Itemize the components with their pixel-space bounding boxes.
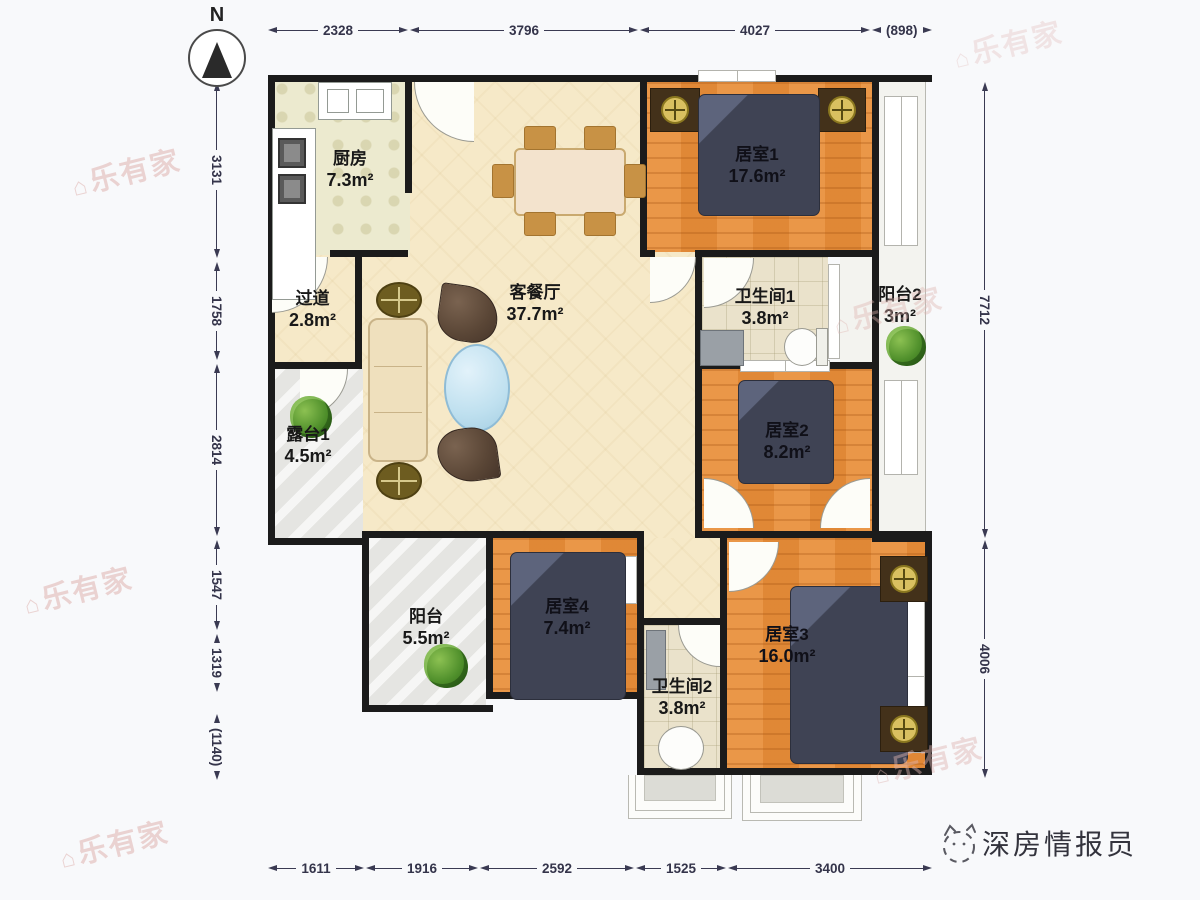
- floor-plan-page: 厨房 7.3m² 过道 2.8m² 客餐厅 37.7m² 居室1 17.6m² …: [0, 0, 1200, 900]
- sink: [700, 330, 744, 366]
- room-name: 居室1: [697, 144, 817, 165]
- wall: [486, 538, 493, 699]
- room-label-bedroom4: 居室4 7.4m²: [512, 596, 622, 640]
- north-triangle-icon: [202, 42, 232, 78]
- brand-name: 深房情报员: [982, 823, 1137, 863]
- dining-chair: [524, 126, 556, 150]
- wall: [362, 705, 493, 712]
- room-label-bedroom3: 居室3 16.0m²: [732, 624, 842, 668]
- room-label-kitchen: 厨房 7.3m²: [300, 148, 400, 192]
- plant-icon: [886, 326, 926, 366]
- plant-icon: [424, 644, 468, 688]
- dining-chair: [492, 164, 514, 198]
- wall: [268, 75, 932, 82]
- room-area: 37.7m²: [470, 303, 600, 326]
- room-label-bedroom1: 居室1 17.6m²: [697, 144, 817, 188]
- dining-chair: [524, 212, 556, 236]
- dimension-bottom: 1525: [636, 857, 726, 879]
- toilet-icon: [658, 726, 704, 770]
- dining-table: [514, 148, 626, 216]
- room-area: 2.8m²: [265, 309, 360, 332]
- room-area: 7.4m²: [512, 617, 622, 640]
- room-name: 卫生间2: [616, 676, 748, 697]
- wall: [268, 362, 362, 369]
- dimension-bottom: 1916: [366, 857, 478, 879]
- wall: [637, 618, 727, 625]
- window: [698, 70, 776, 82]
- north-label: N: [186, 4, 248, 27]
- bay-window: [760, 775, 844, 803]
- room-area: 7.3m²: [300, 169, 400, 192]
- room-corridor-floor: [644, 538, 720, 622]
- side-table: [376, 462, 422, 500]
- lamp-icon: [890, 715, 918, 743]
- dining-chair: [584, 126, 616, 150]
- room-area: 3.8m²: [700, 307, 830, 330]
- bay-window: [644, 775, 716, 801]
- room-name: 卫生间1: [700, 286, 830, 307]
- washer-icon: [327, 89, 349, 113]
- room-name: 露台1: [262, 424, 354, 445]
- room-label-terrace1: 露台1 4.5m²: [262, 424, 354, 468]
- watermark: ⌂乐有家: [55, 809, 173, 877]
- room-name: 客餐厅: [470, 282, 600, 303]
- wall: [268, 538, 369, 545]
- room-label-bedroom2: 居室2 8.2m²: [732, 420, 842, 464]
- nightstand: [818, 88, 866, 132]
- dimension-right: 7712: [974, 82, 996, 538]
- toilet-tank: [816, 328, 828, 366]
- lamp-icon: [828, 96, 856, 124]
- room-area: 17.6m²: [697, 165, 817, 188]
- room-name: 厨房: [300, 148, 400, 169]
- north-arrow: N: [186, 4, 248, 87]
- dimension-bottom: 2592: [480, 857, 634, 879]
- dining-chair: [584, 212, 616, 236]
- room-label-living: 客餐厅 37.7m²: [470, 282, 600, 326]
- dimension-left: 1758: [206, 262, 228, 360]
- wall: [405, 75, 412, 193]
- dryer-icon: [356, 89, 384, 113]
- nightstand: [650, 88, 700, 132]
- room-area: 4.5m²: [262, 445, 354, 468]
- sofa: [368, 318, 428, 462]
- wall: [720, 538, 727, 775]
- room-label-bath2: 卫生间2 3.8m²: [616, 676, 748, 720]
- side-table: [376, 282, 422, 318]
- window: [884, 380, 918, 475]
- dimension-top: 2328: [268, 19, 408, 41]
- dimension-left: 2814: [206, 364, 228, 536]
- wall: [330, 250, 408, 257]
- window: [884, 96, 918, 246]
- dimension-top: 4027: [640, 19, 870, 41]
- lamp-icon: [890, 565, 918, 593]
- dimension-left: 3131: [206, 82, 228, 258]
- watermark: ⌂乐有家: [67, 137, 185, 205]
- wall: [362, 538, 369, 712]
- room-area: 16.0m²: [732, 645, 842, 668]
- room-name: 居室3: [732, 624, 842, 645]
- room-name: 居室2: [732, 420, 842, 441]
- watermark: ⌂乐有家: [19, 555, 137, 623]
- dimension-bottom: 3400: [728, 857, 932, 879]
- room-name: 阳台: [380, 606, 472, 627]
- wall: [640, 250, 655, 257]
- wall: [637, 538, 644, 775]
- room-label-balcony: 阳台 5.5m²: [380, 606, 472, 650]
- dimension-left: 1547: [206, 540, 228, 630]
- dimension-top: 3796: [410, 19, 638, 41]
- wall: [695, 531, 932, 538]
- compass-icon: [188, 29, 246, 87]
- coffee-table: [444, 344, 510, 432]
- wall: [700, 250, 879, 257]
- dimension-top: (898): [872, 19, 932, 41]
- room-name: 过道: [265, 288, 360, 309]
- dimension-bottom: 1611: [268, 857, 364, 879]
- dimension-left: 1319: [206, 634, 228, 710]
- cat-icon: [936, 820, 982, 866]
- watermark: ⌂乐有家: [949, 9, 1067, 77]
- room-label-bath1: 卫生间1 3.8m²: [700, 286, 830, 330]
- room-area: 3.8m²: [616, 697, 748, 720]
- wall: [362, 531, 644, 538]
- brand-logo: 深房情报员: [936, 820, 1137, 866]
- toilet-icon: [784, 328, 820, 366]
- room-label-hallway: 过道 2.8m²: [265, 288, 360, 332]
- dining-chair: [624, 164, 646, 198]
- room-area: 5.5m²: [380, 627, 472, 650]
- room-area: 8.2m²: [732, 441, 842, 464]
- dimension-left: (1140): [206, 714, 228, 782]
- lamp-icon: [661, 96, 689, 124]
- nightstand: [880, 556, 928, 602]
- room-name: 居室4: [512, 596, 622, 617]
